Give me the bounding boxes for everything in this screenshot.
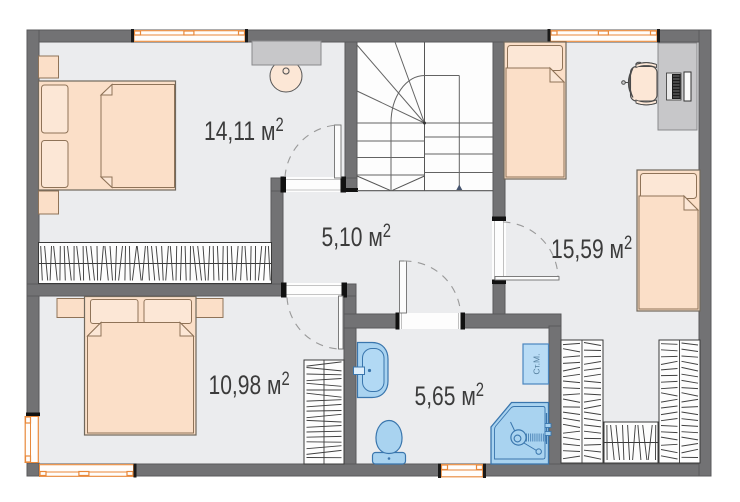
svg-text:14,11 м2: 14,11 м2 [204, 114, 284, 146]
svg-text:10,98 м2: 10,98 м2 [209, 368, 290, 400]
svg-text:Ст.М.: Ст.М. [532, 354, 542, 375]
svg-text:15,59 м2: 15,59 м2 [551, 232, 632, 264]
svg-text:5,10 м2: 5,10 м2 [322, 220, 392, 252]
svg-text:5,65 м2: 5,65 м2 [415, 379, 485, 411]
